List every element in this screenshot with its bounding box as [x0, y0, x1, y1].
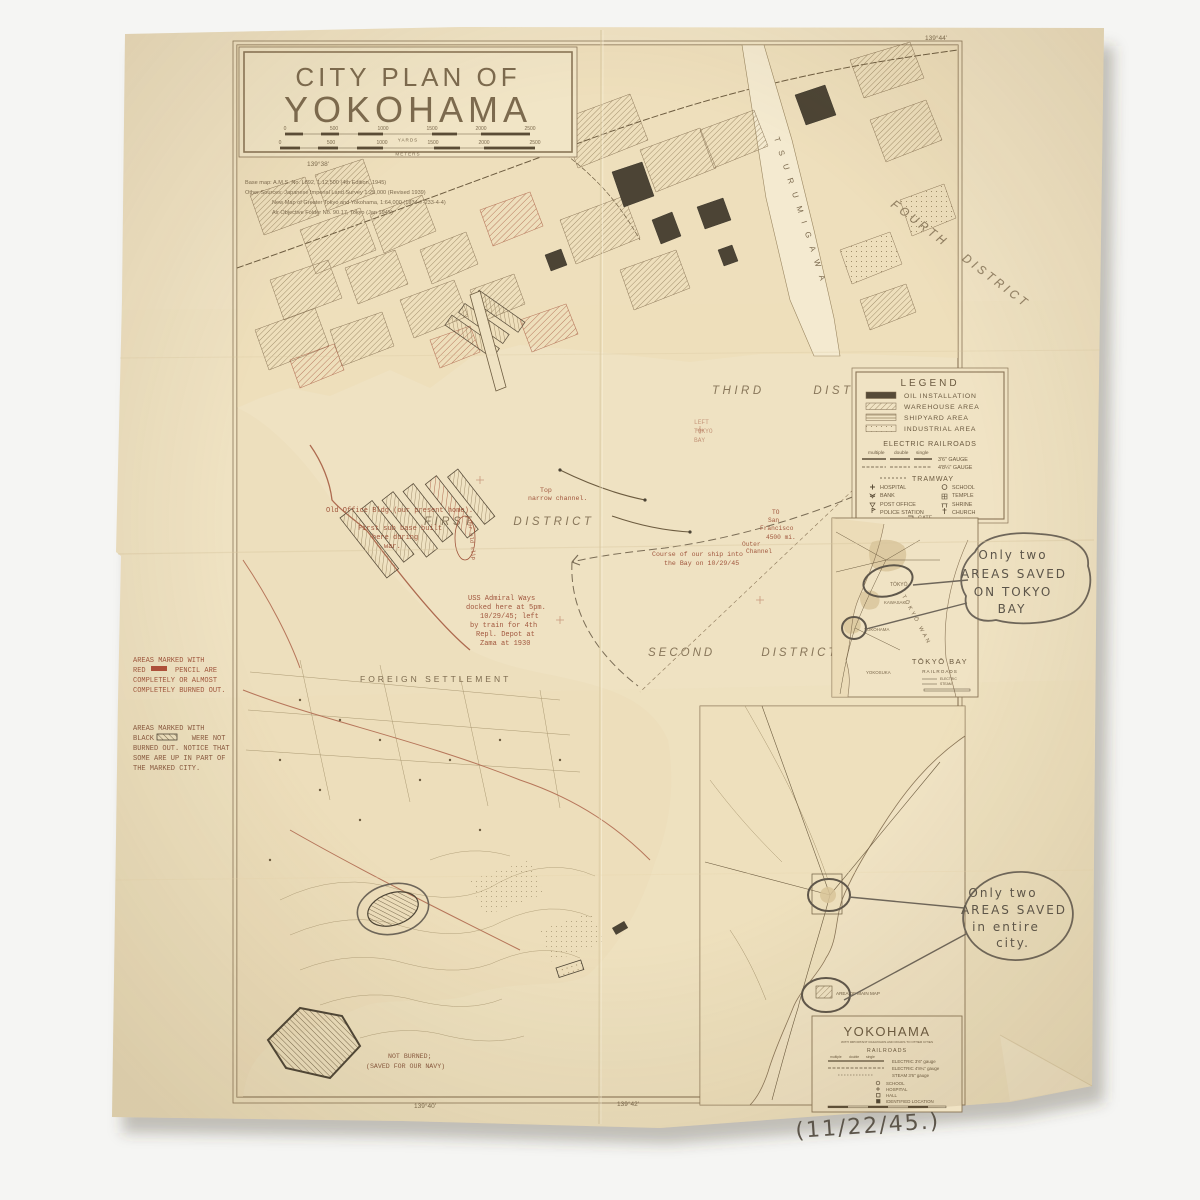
map-photo: CITY PLAN OF YOKOHAMA 0 500 1000 1500 20… — [0, 0, 1200, 1200]
paper-vignette — [112, 27, 1104, 1128]
